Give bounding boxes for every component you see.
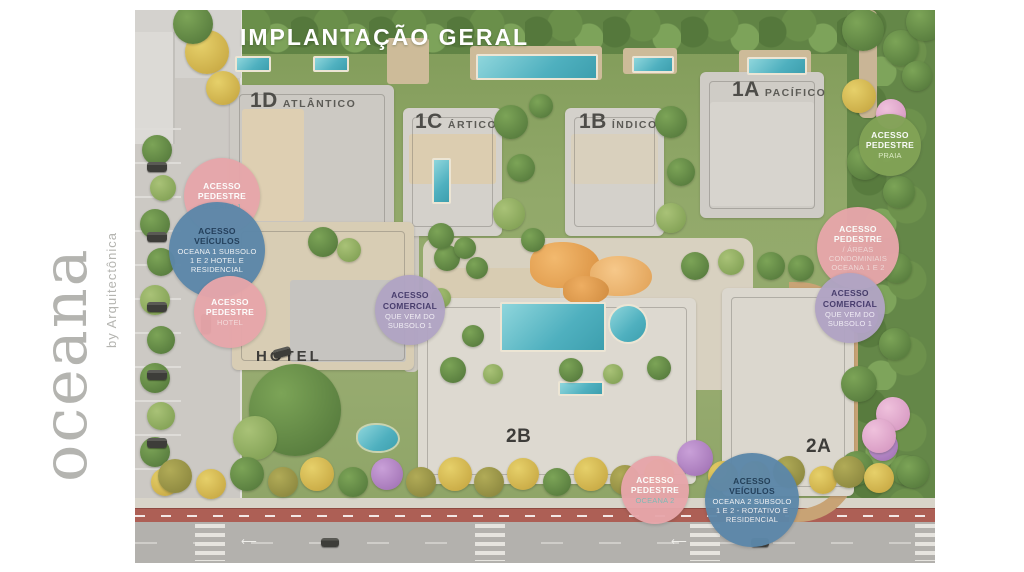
tree bbox=[862, 419, 896, 453]
tree bbox=[842, 10, 884, 51]
car bbox=[147, 162, 167, 172]
tree bbox=[440, 357, 466, 383]
tree bbox=[371, 458, 403, 490]
building-code: 2A bbox=[806, 436, 831, 458]
tree bbox=[494, 105, 528, 139]
tree bbox=[493, 198, 525, 230]
pool bbox=[747, 57, 807, 75]
tree bbox=[656, 203, 686, 233]
tree bbox=[507, 458, 539, 490]
badge-subtitle: QUE VEM DO SUBSOLO 1 bbox=[821, 310, 879, 328]
badge-title: ACESSO VEÍCULOS bbox=[711, 476, 793, 496]
badge-title: ACESSO PEDESTRE bbox=[865, 130, 915, 150]
pool bbox=[235, 56, 271, 72]
tree bbox=[529, 94, 553, 118]
crosswalk bbox=[915, 524, 935, 561]
badge-acesso-pedestre-oceana2: ACESSO PEDESTRE OCEANA 2 bbox=[621, 456, 689, 524]
crosswalk bbox=[195, 524, 225, 561]
tree bbox=[897, 456, 929, 488]
badge-subtitle: OCEANA 2 bbox=[627, 496, 683, 505]
car bbox=[321, 538, 339, 547]
pool bbox=[500, 302, 606, 352]
pool bbox=[313, 56, 349, 72]
tree bbox=[841, 366, 877, 402]
badge-title: ACESSO PEDESTRE bbox=[627, 475, 683, 495]
tree bbox=[543, 468, 571, 496]
tree bbox=[438, 457, 472, 491]
tree bbox=[230, 457, 264, 491]
tree bbox=[206, 71, 240, 105]
building-name: ATLÂNTICO bbox=[283, 98, 356, 110]
badge-title: ACESSO COMERCIAL bbox=[381, 290, 439, 310]
tree bbox=[474, 467, 504, 497]
tree bbox=[879, 328, 911, 360]
badge-acesso-comercial-subsolo1-center: ACESSO COMERCIAL QUE VEM DO SUBSOLO 1 bbox=[375, 275, 445, 345]
tree bbox=[406, 467, 436, 497]
pool bbox=[632, 56, 674, 73]
building-1b: 1B ÍNDICO bbox=[565, 108, 664, 236]
tree bbox=[158, 459, 192, 493]
building-code: 1A bbox=[732, 78, 760, 102]
tree bbox=[667, 158, 695, 186]
pool bbox=[558, 381, 604, 396]
badge-title: ACESSO PEDESTRE bbox=[190, 181, 254, 201]
tree bbox=[788, 255, 814, 281]
badge-subtitle: OCEANA 2 SUBSOLO 1 E 2 - ROTATIVO E RESI… bbox=[711, 497, 793, 524]
brand-logo: oceana bbox=[34, 96, 96, 482]
page-title: IMPLANTAÇÃO GERAL bbox=[240, 24, 529, 51]
site-plan: 1D ATLÂNTICO 1C ÁRTICO 1B ÍNDICO 1A PACÍ… bbox=[135, 10, 935, 563]
tree bbox=[150, 175, 176, 201]
tree bbox=[147, 402, 175, 430]
badge-subtitle: / ÁREAS CONDOMINIAIS OCEANA 1 E 2 bbox=[823, 245, 893, 272]
tree bbox=[507, 154, 535, 182]
building-name: ÁRTICO bbox=[448, 119, 497, 131]
building-1c-terrace bbox=[409, 134, 496, 184]
tree bbox=[337, 238, 361, 262]
slide: oceana by Arquitectônica 1D ATLÂNTICO bbox=[0, 0, 1024, 572]
tree bbox=[718, 249, 744, 275]
road-direction-arrow: ⟵ bbox=[671, 537, 687, 548]
badge-acesso-veiculos-oceana2: ACESSO VEÍCULOS OCEANA 2 SUBSOLO 1 E 2 -… bbox=[705, 453, 799, 547]
pool bbox=[608, 304, 648, 344]
tree bbox=[142, 135, 172, 165]
car bbox=[147, 370, 167, 380]
tree bbox=[757, 252, 785, 280]
tree bbox=[883, 176, 915, 208]
tree bbox=[655, 106, 687, 138]
badge-title: ACESSO PEDESTRE bbox=[823, 224, 893, 244]
badge-acesso-comercial-subsolo1-right: ACESSO COMERCIAL QUE VEM DO SUBSOLO 1 bbox=[815, 273, 885, 343]
tree bbox=[521, 228, 545, 252]
badge-acesso-pedestre-praia: ACESSO PEDESTRE PRAIA bbox=[859, 114, 921, 176]
crosswalk bbox=[475, 524, 505, 561]
badge-subtitle: OCEANA 1 SUBSOLO 1 E 2 HOTEL E RESIDENCI… bbox=[175, 247, 259, 274]
tree bbox=[268, 467, 298, 497]
tree bbox=[338, 467, 368, 497]
tree bbox=[902, 61, 932, 91]
tree bbox=[462, 325, 484, 347]
pool bbox=[476, 54, 598, 80]
building-1a: 1A PACÍFICO bbox=[700, 72, 824, 218]
tree bbox=[603, 364, 623, 384]
building-code: 1B bbox=[579, 110, 607, 134]
building-1a-roof bbox=[710, 102, 814, 206]
badge-title: ACESSO VEÍCULOS bbox=[175, 226, 259, 246]
building-code: 1C bbox=[415, 110, 443, 134]
sand-playground bbox=[563, 276, 609, 304]
tree bbox=[300, 457, 334, 491]
tree bbox=[454, 237, 476, 259]
tree bbox=[483, 364, 503, 384]
car bbox=[147, 438, 167, 448]
tree bbox=[647, 356, 671, 380]
tree bbox=[233, 416, 277, 460]
building-name: ÍNDICO bbox=[612, 119, 658, 131]
tree bbox=[428, 223, 454, 249]
badge-subtitle: HOTEL bbox=[200, 318, 260, 327]
tree bbox=[147, 326, 175, 354]
brand-byline: by Arquitectônica bbox=[104, 108, 119, 348]
building-name: PACÍFICO bbox=[765, 87, 826, 99]
badge-acesso-pedestre-hotel: ACESSO PEDESTRE HOTEL bbox=[194, 276, 266, 348]
building-code: 2B bbox=[506, 426, 531, 448]
badge-subtitle: QUE VEM DO SUBSOLO 1 bbox=[381, 312, 439, 330]
badge-title: ACESSO COMERCIAL bbox=[821, 288, 879, 308]
pond bbox=[356, 423, 400, 453]
badge-subtitle: PRAIA bbox=[865, 151, 915, 160]
tree bbox=[864, 463, 894, 493]
tree bbox=[466, 257, 488, 279]
tree bbox=[681, 252, 709, 280]
tree bbox=[833, 456, 865, 488]
tree bbox=[559, 358, 583, 382]
tree bbox=[196, 469, 226, 499]
building-1c: 1C ÁRTICO bbox=[403, 108, 502, 236]
tree bbox=[574, 457, 608, 491]
building-1b-terrace bbox=[571, 134, 658, 184]
road-direction-arrow: ⟵ bbox=[241, 537, 257, 548]
tree bbox=[308, 227, 338, 257]
badge-title: ACESSO PEDESTRE bbox=[200, 297, 260, 317]
tree bbox=[842, 79, 876, 113]
car bbox=[147, 302, 167, 312]
building-code: 1D bbox=[250, 89, 278, 113]
car bbox=[147, 232, 167, 242]
pool bbox=[432, 158, 451, 204]
